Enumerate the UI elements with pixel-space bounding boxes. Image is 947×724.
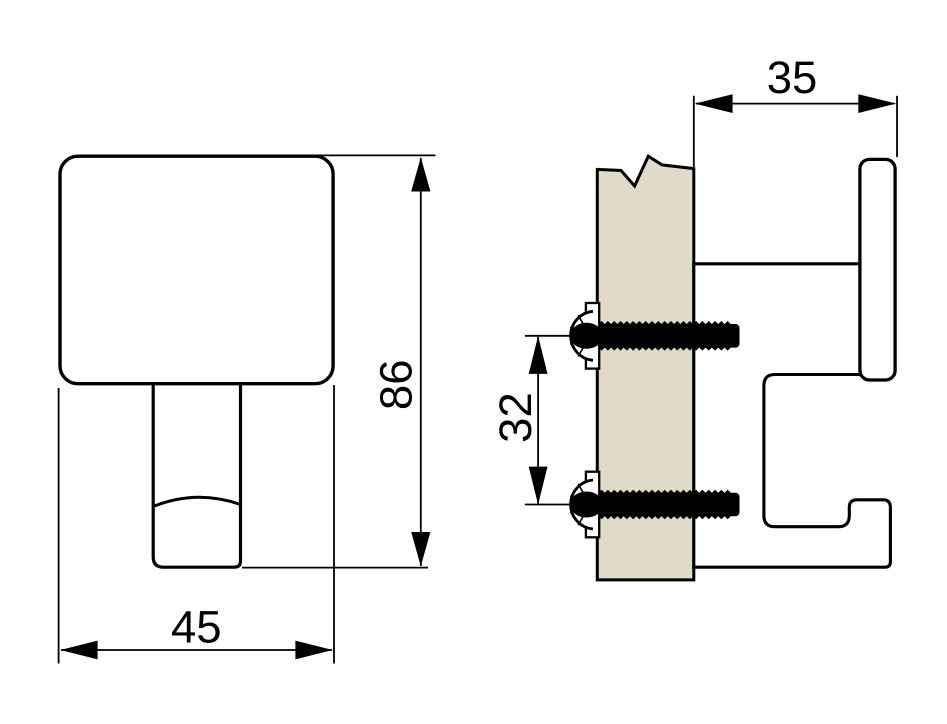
svg-text:45: 45 (171, 602, 222, 653)
svg-text:32: 32 (490, 392, 541, 443)
svg-text:35: 35 (767, 52, 818, 103)
svg-text:86: 86 (371, 359, 422, 410)
